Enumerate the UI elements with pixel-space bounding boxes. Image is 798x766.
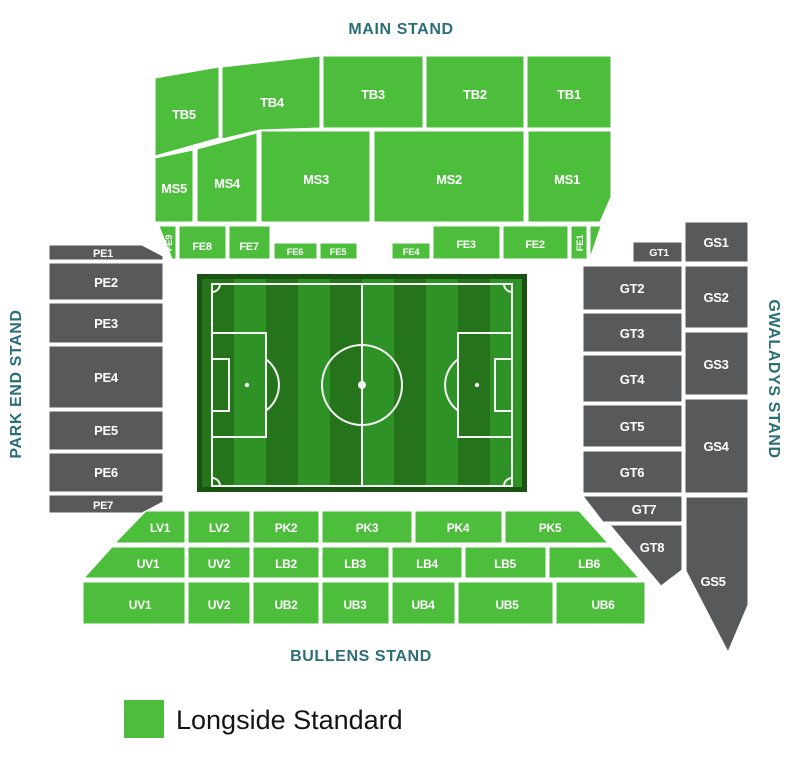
left-penalty-spot — [245, 383, 249, 387]
section-fe7[interactable] — [229, 226, 270, 259]
section-pe7 — [49, 495, 163, 513]
main-stand-group: TB5 TB4 TB3 TB2 TB1 MS5 MS4 MS3 MS2 MS1 … — [155, 56, 611, 259]
section-pe5 — [49, 411, 163, 450]
section-pe6 — [49, 453, 163, 492]
main-stand-title: MAIN STAND — [348, 21, 453, 38]
section-gt6 — [583, 451, 682, 493]
section-gt4 — [583, 355, 682, 402]
section-fe9[interactable] — [159, 226, 176, 259]
main-stand-corner-sliver — [590, 226, 601, 258]
football-pitch — [197, 274, 527, 492]
section-gt1 — [633, 242, 682, 262]
section-pe4 — [49, 346, 163, 408]
section-pk3[interactable] — [322, 511, 412, 543]
legend-label: Longside Standard — [176, 705, 403, 735]
stadium-seat-map-page: MAIN STAND PARK END STAND GWALADYS STAND… — [0, 0, 798, 766]
section-gt3 — [583, 313, 682, 352]
section-lb2[interactable] — [253, 547, 319, 578]
bullens-stand-title: BULLENS STAND — [290, 648, 432, 665]
legend: Longside Standard — [124, 700, 403, 738]
section-pe3 — [49, 303, 163, 343]
section-pe2 — [49, 263, 163, 300]
stadium-seat-map: MAIN STAND PARK END STAND GWALADYS STAND… — [0, 0, 798, 766]
section-ub3[interactable] — [322, 582, 389, 624]
section-gs3 — [685, 332, 748, 395]
gwaladys-stand-title: GWALADYS STAND — [765, 299, 782, 458]
section-ms5[interactable] — [155, 150, 193, 222]
section-uv2-row3[interactable] — [188, 582, 250, 624]
section-fe5[interactable] — [320, 243, 357, 259]
section-tb3[interactable] — [323, 56, 423, 128]
section-fe1[interactable] — [571, 226, 587, 259]
section-pk5[interactable] — [505, 511, 608, 543]
park-end-stand-group: PE1 PE2 PE3 PE4 PE5 PE6 PE7 — [49, 245, 163, 513]
center-spot — [358, 381, 366, 389]
section-ub6[interactable] — [556, 582, 645, 624]
right-penalty-spot — [475, 383, 479, 387]
section-uv1-row3[interactable] — [83, 582, 185, 624]
bullens-stand-group: LV1 LV2 PK2 PK3 PK4 PK5 UV1 UV2 LB2 LB3 … — [83, 511, 645, 624]
section-ms3[interactable] — [261, 131, 370, 222]
section-tb4[interactable] — [222, 56, 320, 139]
section-ub2[interactable] — [253, 582, 319, 624]
section-tb1[interactable] — [527, 56, 611, 128]
park-end-stand-title: PARK END STAND — [8, 309, 25, 458]
section-pk2[interactable] — [253, 511, 319, 543]
section-gs5 — [686, 497, 748, 652]
section-lb4[interactable] — [392, 547, 462, 578]
section-gt2 — [583, 266, 682, 310]
section-gt5 — [583, 405, 682, 447]
section-fe2[interactable] — [503, 226, 568, 259]
section-pe1 — [49, 245, 163, 260]
section-fe3[interactable] — [433, 226, 500, 259]
section-fe6[interactable] — [274, 243, 317, 259]
section-ms2[interactable] — [374, 131, 524, 222]
section-uv2-row2[interactable] — [188, 547, 250, 578]
section-gs4 — [685, 399, 748, 493]
section-ms4[interactable] — [197, 133, 257, 222]
section-gs2 — [685, 266, 748, 328]
section-gt7 — [583, 496, 682, 522]
section-ub4[interactable] — [392, 582, 455, 624]
section-lb6[interactable] — [549, 547, 639, 578]
section-uv1-row2[interactable] — [84, 547, 185, 578]
section-tb2[interactable] — [426, 56, 524, 128]
section-lb5[interactable] — [465, 547, 546, 578]
section-ub5[interactable] — [458, 582, 553, 624]
section-gs1 — [685, 222, 748, 262]
section-lb3[interactable] — [322, 547, 389, 578]
section-tb5[interactable] — [155, 67, 219, 156]
section-lv2[interactable] — [188, 511, 250, 543]
section-fe8[interactable] — [179, 226, 226, 259]
section-pk4[interactable] — [415, 511, 502, 543]
section-ms1[interactable] — [528, 131, 611, 222]
legend-swatch — [124, 700, 164, 738]
section-fe4[interactable] — [392, 243, 430, 259]
section-lv1[interactable] — [115, 511, 185, 543]
